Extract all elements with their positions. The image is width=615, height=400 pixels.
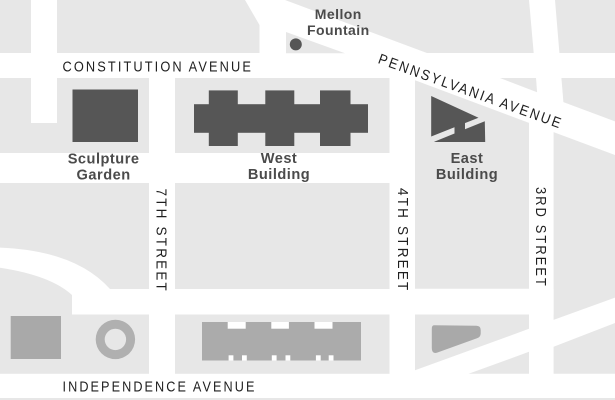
- svg-text:Mellon: Mellon: [315, 6, 362, 22]
- svg-text:7TH STREET: 7TH STREET: [153, 189, 169, 294]
- svg-text:3RD STREET: 3RD STREET: [532, 187, 548, 288]
- svg-text:CONSTITUTION AVENUE: CONSTITUTION AVENUE: [63, 60, 254, 76]
- svg-text:Sculpture: Sculpture: [68, 151, 140, 167]
- svg-text:East: East: [451, 151, 484, 167]
- svg-text:INDEPENDENCE AVENUE: INDEPENDENCE AVENUE: [63, 379, 257, 395]
- svg-text:Building: Building: [248, 167, 310, 183]
- svg-text:4TH STREET: 4TH STREET: [394, 188, 410, 293]
- svg-text:Building: Building: [436, 167, 498, 183]
- svg-text:Fountain: Fountain: [307, 22, 370, 38]
- svg-text:West: West: [261, 151, 298, 167]
- svg-text:Garden: Garden: [77, 167, 131, 183]
